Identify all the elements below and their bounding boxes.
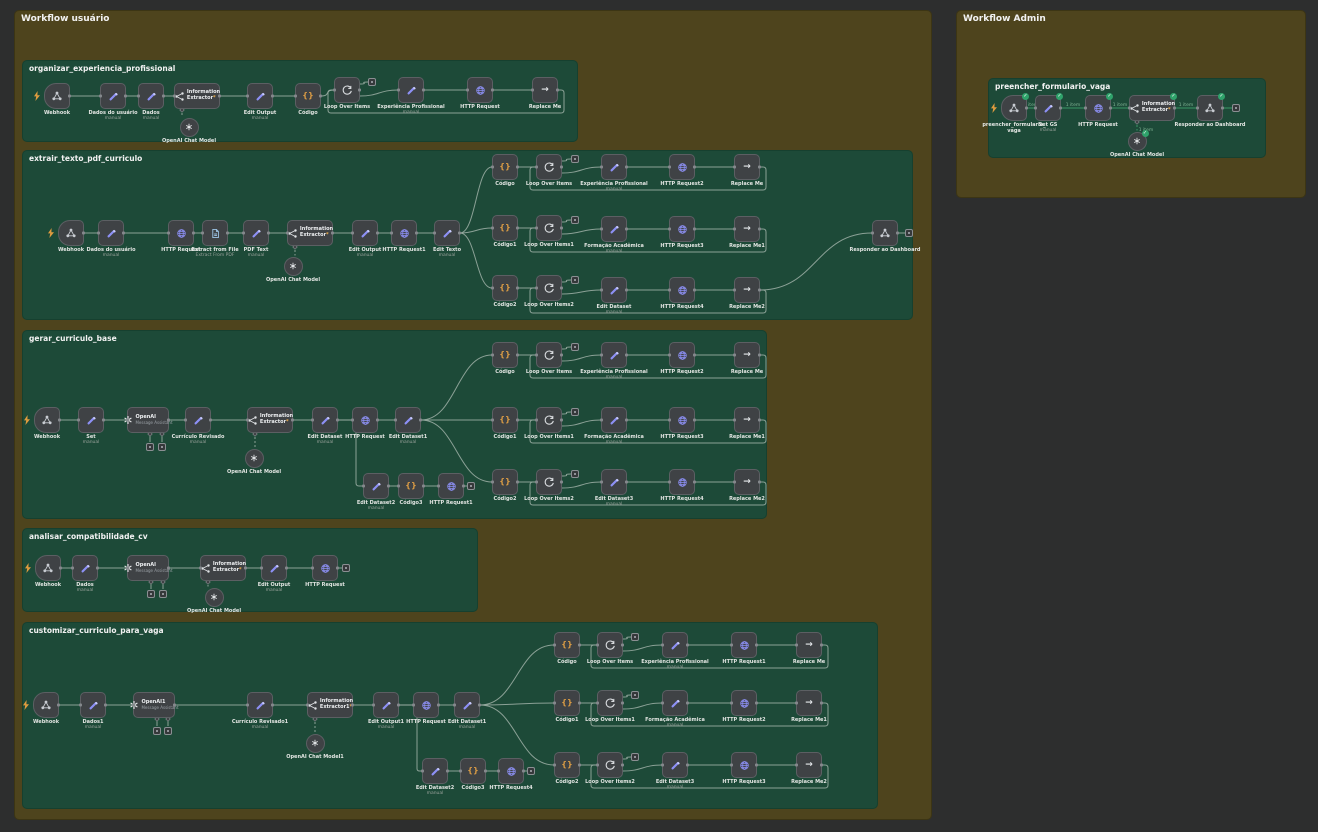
code-icon: {} <box>499 351 510 359</box>
globe-icon <box>506 766 517 777</box>
node-endpoint[interactable] <box>368 78 376 86</box>
node-http-request1[interactable]: HTTP Request1 <box>391 220 417 246</box>
webhook-icon <box>1008 102 1020 114</box>
node-codigo[interactable]: {}Código <box>295 83 321 109</box>
globe-icon <box>677 285 688 296</box>
node-codigo2[interactable]: {}Código2 <box>554 752 580 778</box>
globe-icon <box>421 700 432 711</box>
node-webhook[interactable]: Webhook <box>44 83 70 109</box>
workflow-title: customizar_curriculo_para_vaga <box>29 626 164 635</box>
model-icon <box>185 123 193 131</box>
node-http-request[interactable]: HTTP Request <box>352 407 378 433</box>
pen-icon <box>371 481 382 492</box>
success-check-icon: ✓ <box>1170 93 1177 100</box>
success-check-icon: ✓ <box>1142 130 1149 137</box>
node-codigo[interactable]: {}Código <box>492 342 518 368</box>
node-endpoint[interactable] <box>571 216 579 224</box>
code-icon: {} <box>467 767 478 775</box>
node-http-request1[interactable]: HTTP Request1 <box>438 473 464 499</box>
node-experiencia-profissional[interactable]: Experiência Profissionalmanual <box>601 342 627 368</box>
node-edit-dataset3[interactable]: Edit Dataset3manual <box>662 752 688 778</box>
node-dados-do-usuario[interactable]: Dados do usuáriomanual <box>98 220 124 246</box>
node-set-gs[interactable]: Set GSmanual✓ <box>1035 95 1061 121</box>
globe-icon <box>475 85 486 96</box>
node-http-request2[interactable]: HTTP Request2 <box>731 690 757 716</box>
pen-icon <box>320 415 331 426</box>
node-experiencia-profissional[interactable]: Experiência Profissionalmanual <box>662 632 688 658</box>
pen-icon <box>670 698 681 709</box>
node-replace-me2[interactable]: →Replace Me2 <box>734 277 760 303</box>
node-webhook[interactable]: Webhook <box>58 220 84 246</box>
node-edit-dataset2[interactable]: Edit Dataset2manual <box>363 473 389 499</box>
globe-icon <box>677 162 688 173</box>
code-icon: {} <box>499 163 510 171</box>
node-endpoint[interactable] <box>571 343 579 351</box>
node-http-request3[interactable]: HTTP Request3 <box>669 407 695 433</box>
success-check-icon: ✓ <box>1022 93 1029 100</box>
globe-icon <box>677 415 688 426</box>
arrow-right-icon: → <box>541 86 549 95</box>
node-http-request[interactable]: HTTP Request <box>413 692 439 718</box>
node-pdf-text[interactable]: PDF Textmanual <box>243 220 269 246</box>
node-openai-chat-model[interactable]: OpenAI Chat Model✓ <box>1128 132 1147 151</box>
model-icon <box>210 593 218 601</box>
node-loop-over-items1[interactable]: Loop Over Items1 <box>597 690 623 716</box>
webhook-icon <box>41 414 53 426</box>
node-endpoint[interactable] <box>159 590 167 598</box>
pen-icon <box>269 563 280 574</box>
node-title: InformationExtractor* <box>260 414 293 426</box>
code-icon: {} <box>561 699 572 707</box>
globe-icon <box>739 760 750 771</box>
node-formacao-academica[interactable]: Formação Acadêmicamanual <box>601 407 627 433</box>
node-set[interactable]: Setmanual <box>78 407 104 433</box>
node-information-extractor[interactable]: InformationExtractor*✓ <box>1129 95 1175 121</box>
code-icon: {} <box>302 92 313 100</box>
node-edit-output1[interactable]: Edit Output1manual <box>373 692 399 718</box>
node-title: InformationExtractor* <box>300 227 333 239</box>
node-replace-me[interactable]: →Replace Me <box>796 632 822 658</box>
node-http-request[interactable]: HTTP Request <box>168 220 194 246</box>
workflow-title: gerar_curriculo_base <box>29 334 117 343</box>
pen-icon <box>193 415 204 426</box>
node-dados[interactable]: Dadosmanual <box>138 83 164 109</box>
globe-icon <box>1093 103 1104 114</box>
pen-icon <box>462 700 473 711</box>
arrow-right-icon: → <box>743 351 751 360</box>
node-loop-over-items[interactable]: Loop Over Items <box>536 342 562 368</box>
webhook-icon <box>65 227 77 239</box>
arrow-right-icon: → <box>743 416 751 425</box>
arrow-right-icon: → <box>743 225 751 234</box>
model-icon <box>250 454 258 462</box>
arrow-right-icon: → <box>805 699 813 708</box>
webhook-icon <box>40 699 52 711</box>
globe-icon <box>677 350 688 361</box>
model-icon <box>1133 137 1141 145</box>
node-replace-me2[interactable]: →Replace Me2 <box>734 469 760 495</box>
node-openai[interactable]: OpenAIMessage Assistant <box>127 407 169 433</box>
node-edit-dataset[interactable]: Edit Datasetmanual <box>601 277 627 303</box>
node-extract-from-file[interactable]: Extract from FileExtract From PDF <box>202 220 228 246</box>
node-information-extractor[interactable]: InformationExtractor* <box>287 220 333 246</box>
code-icon: {} <box>499 416 510 424</box>
code-icon: {} <box>561 641 572 649</box>
node-responder-ao-dashboard[interactable]: Responder ao Dashboard✓ <box>1197 95 1223 121</box>
node-endpoint[interactable] <box>153 727 161 735</box>
pen-icon <box>381 700 392 711</box>
arrow-right-icon: → <box>805 761 813 770</box>
pen-icon <box>403 415 414 426</box>
webhook-icon <box>51 90 63 102</box>
node-http-request3[interactable]: HTTP Request3 <box>669 216 695 242</box>
node-replace-me1[interactable]: →Replace Me1 <box>734 216 760 242</box>
loop-icon <box>544 477 555 488</box>
pen-icon <box>255 700 266 711</box>
node-information-extractor1[interactable]: InformationExtractor1* <box>307 692 353 718</box>
node-formacao-academica[interactable]: Formação Acadêmicamanual <box>662 690 688 716</box>
model-icon <box>289 262 297 270</box>
node-loop-over-items[interactable]: Loop Over Items <box>536 154 562 180</box>
success-check-icon: ✓ <box>1218 93 1225 100</box>
node-openai-chat-model1[interactable]: OpenAI Chat Model1 <box>306 734 325 753</box>
loop-icon <box>544 415 555 426</box>
loop-icon <box>544 223 555 234</box>
loop-icon <box>342 85 353 96</box>
node-endpoint[interactable] <box>571 408 579 416</box>
node-title: InformationExtractor* <box>213 562 246 574</box>
node-experiencia-profissional[interactable]: Experiência Profissionalmanual <box>601 154 627 180</box>
node-codigo3[interactable]: {}Código3 <box>460 758 486 784</box>
node-title: InformationExtractor* <box>1142 102 1175 114</box>
node-replace-me2[interactable]: →Replace Me2 <box>796 752 822 778</box>
node-endpoint[interactable] <box>158 443 166 451</box>
node-http-request4[interactable]: HTTP Request4 <box>498 758 524 784</box>
arrow-right-icon: → <box>743 163 751 172</box>
node-openai[interactable]: OpenAIMessage Assistant <box>127 555 169 581</box>
node-loop-over-items1[interactable]: Loop Over Items1 <box>536 215 562 241</box>
globe-icon <box>399 228 410 239</box>
node-openai1[interactable]: OpenAI1Message Assistant <box>133 692 175 718</box>
node-endpoint[interactable] <box>571 155 579 163</box>
respond-icon <box>1204 102 1216 114</box>
loop-icon <box>605 698 616 709</box>
arrow-right-icon: → <box>743 286 751 295</box>
trigger-bolt-icon <box>990 103 998 113</box>
trigger-bolt-icon <box>33 91 41 101</box>
node-endpoint[interactable] <box>631 633 639 641</box>
node-codigo3[interactable]: {}Código3 <box>398 473 424 499</box>
node-edit-dataset1[interactable]: Edit Dataset1manual <box>454 692 480 718</box>
trigger-bolt-icon <box>24 563 32 573</box>
pen-icon <box>609 350 620 361</box>
node-edit-output[interactable]: Edit Outputmanual <box>261 555 287 581</box>
pen-icon <box>108 91 119 102</box>
pen-icon <box>1043 103 1054 114</box>
workflow-title: extrair_texto_pdf_curriculo <box>29 154 142 163</box>
node-edit-dataset1[interactable]: Edit Dataset1manual <box>395 407 421 433</box>
node-codigo[interactable]: {}Código <box>554 632 580 658</box>
loop-icon <box>605 760 616 771</box>
code-icon: {} <box>499 284 510 292</box>
node-webhook[interactable]: Webhook <box>33 692 59 718</box>
node-webhook[interactable]: Webhook <box>35 555 61 581</box>
pen-icon <box>406 85 417 96</box>
node-http-request1[interactable]: HTTP Request1 <box>731 632 757 658</box>
pen-icon <box>609 224 620 235</box>
node-loop-over-items[interactable]: Loop Over Items <box>334 77 360 103</box>
pen-icon <box>609 477 620 488</box>
node-http-request[interactable]: HTTP Request <box>467 77 493 103</box>
loop-icon <box>605 640 616 651</box>
sticky-note-workflow-preencher-formulario-vaga[interactable]: preencher_formulario_vaga <box>988 78 1266 158</box>
node-endpoint[interactable] <box>164 727 172 735</box>
node-edit-texto[interactable]: Edit Textomanual <box>434 220 460 246</box>
node-codigo[interactable]: {}Código <box>492 154 518 180</box>
pen-icon <box>360 228 371 239</box>
node-loop-over-items2[interactable]: Loop Over Items2 <box>536 275 562 301</box>
code-icon: {} <box>499 478 510 486</box>
node-endpoint[interactable] <box>1232 104 1240 112</box>
sticky-note-workflow-extrair-texto-pdf-curriculo[interactable]: extrair_texto_pdf_curriculo <box>22 150 913 320</box>
respond-icon <box>879 227 891 239</box>
arrow-right-icon: → <box>805 641 813 650</box>
node-codigo2[interactable]: {}Código2 <box>492 275 518 301</box>
node-loop-over-items1[interactable]: Loop Over Items1 <box>536 407 562 433</box>
pen-icon <box>670 760 681 771</box>
node-endpoint[interactable] <box>905 229 913 237</box>
node-loop-over-items[interactable]: Loop Over Items <box>597 632 623 658</box>
success-check-icon: ✓ <box>1106 93 1113 100</box>
node-codigo1[interactable]: {}Código1 <box>492 215 518 241</box>
webhook-icon <box>42 562 54 574</box>
node-edit-output[interactable]: Edit Outputmanual <box>352 220 378 246</box>
workflow-title: preencher_formulario_vaga <box>995 82 1110 91</box>
node-dados[interactable]: Dadosmanual <box>72 555 98 581</box>
trigger-bolt-icon <box>23 415 31 425</box>
node-openai-chat-model[interactable]: OpenAI Chat Model <box>245 449 264 468</box>
node-dados1[interactable]: Dados1manual <box>80 692 106 718</box>
loop-icon <box>544 162 555 173</box>
node-preencher-formulario-vaga[interactable]: preencher_formulario_vaga✓ <box>1001 95 1027 121</box>
node-curriculo-revisado1[interactable]: Currículo Revisado1manual <box>247 692 273 718</box>
pen-icon <box>442 228 453 239</box>
node-http-request4[interactable]: HTTP Request4 <box>669 469 695 495</box>
node-http-request2[interactable]: HTTP Request2 <box>669 342 695 368</box>
trigger-bolt-icon <box>22 700 30 710</box>
node-codigo1[interactable]: {}Código1 <box>554 690 580 716</box>
node-endpoint[interactable] <box>631 753 639 761</box>
node-endpoint[interactable] <box>571 276 579 284</box>
success-check-icon: ✓ <box>1056 93 1063 100</box>
node-title: InformationExtractor* <box>187 90 220 102</box>
node-title: InformationExtractor1* <box>320 699 353 711</box>
node-http-request3[interactable]: HTTP Request3 <box>731 752 757 778</box>
code-icon: {} <box>499 224 510 232</box>
node-endpoint[interactable] <box>571 470 579 478</box>
node-information-extractor[interactable]: InformationExtractor* <box>247 407 293 433</box>
pen-icon <box>255 91 266 102</box>
globe-icon <box>739 640 750 651</box>
workflow-canvas[interactable]: 1 item1 item1 item1 item1 item Workflow … <box>0 0 1318 832</box>
node-openai-chat-model[interactable]: OpenAI Chat Model <box>205 588 224 607</box>
pen-icon <box>86 415 97 426</box>
node-http-request[interactable]: HTTP Request✓ <box>1085 95 1111 121</box>
globe-icon <box>739 698 750 709</box>
loop-icon <box>544 350 555 361</box>
node-replace-me[interactable]: →Replace Me <box>734 154 760 180</box>
pen-icon <box>251 228 262 239</box>
node-http-request4[interactable]: HTTP Request4 <box>669 277 695 303</box>
pen-icon <box>80 563 91 574</box>
globe-icon <box>677 224 688 235</box>
node-endpoint[interactable] <box>527 767 535 775</box>
trigger-bolt-icon <box>47 228 55 238</box>
workflow-title: organizar_experiencia_profissional <box>29 64 175 73</box>
node-endpoint[interactable] <box>147 590 155 598</box>
node-codigo2[interactable]: {}Código2 <box>492 469 518 495</box>
node-replace-me[interactable]: →Replace Me <box>734 342 760 368</box>
node-loop-over-items2[interactable]: Loop Over Items2 <box>597 752 623 778</box>
group-title: Workflow Admin <box>963 14 1046 24</box>
pen-icon <box>430 766 441 777</box>
pen-icon <box>670 640 681 651</box>
model-icon <box>311 739 319 747</box>
globe-icon <box>446 481 457 492</box>
arrow-right-icon: → <box>743 478 751 487</box>
code-icon: {} <box>561 761 572 769</box>
node-replace-me[interactable]: →Replace Me <box>532 77 558 103</box>
node-edit-output[interactable]: Edit Outputmanual <box>247 83 273 109</box>
node-openai-chat-model[interactable]: OpenAI Chat Model <box>180 118 199 137</box>
node-responder-ao-dashboard[interactable]: Responder ao Dashboard <box>872 220 898 246</box>
pen-icon <box>609 162 620 173</box>
node-codigo1[interactable]: {}Código1 <box>492 407 518 433</box>
node-curriculo-revisado[interactable]: Currículo Revisadomanual <box>185 407 211 433</box>
globe-icon <box>677 477 688 488</box>
pen-icon <box>146 91 157 102</box>
node-openai-chat-model[interactable]: OpenAI Chat Model <box>284 257 303 276</box>
node-endpoint[interactable] <box>631 691 639 699</box>
node-http-request2[interactable]: HTTP Request2 <box>669 154 695 180</box>
node-endpoint[interactable] <box>342 564 350 572</box>
node-dados-do-usuario[interactable]: Dados do usuáriomanual <box>100 83 126 109</box>
node-formacao-academica[interactable]: Formação Acadêmicamanual <box>601 216 627 242</box>
node-information-extractor[interactable]: InformationExtractor* <box>174 83 220 109</box>
node-edit-dataset[interactable]: Edit Datasetmanual <box>312 407 338 433</box>
node-endpoint[interactable] <box>146 443 154 451</box>
node-information-extractor[interactable]: InformationExtractor* <box>200 555 246 581</box>
pen-icon <box>88 700 99 711</box>
node-replace-me1[interactable]: →Replace Me1 <box>734 407 760 433</box>
node-endpoint[interactable] <box>467 482 475 490</box>
node-edit-dataset2[interactable]: Edit Dataset2manual <box>422 758 448 784</box>
node-edit-dataset3[interactable]: Edit Dataset3manual <box>601 469 627 495</box>
node-replace-me1[interactable]: →Replace Me1 <box>796 690 822 716</box>
code-icon: {} <box>405 482 416 490</box>
node-webhook[interactable]: Webhook <box>34 407 60 433</box>
pen-icon <box>609 285 620 296</box>
globe-icon <box>360 415 371 426</box>
group-title: Workflow usuário <box>21 14 109 24</box>
loop-icon <box>544 283 555 294</box>
workflow-title: analisar_compatibilidade_cv <box>29 532 148 541</box>
node-http-request[interactable]: HTTP Request <box>312 555 338 581</box>
pen-icon <box>106 228 117 239</box>
pen-icon <box>609 415 620 426</box>
node-experiencia-profissional[interactable]: Experiência Profissionalmanual <box>398 77 424 103</box>
globe-icon <box>320 563 331 574</box>
globe-icon <box>176 228 187 239</box>
node-loop-over-items2[interactable]: Loop Over Items2 <box>536 469 562 495</box>
file-icon <box>210 228 221 239</box>
